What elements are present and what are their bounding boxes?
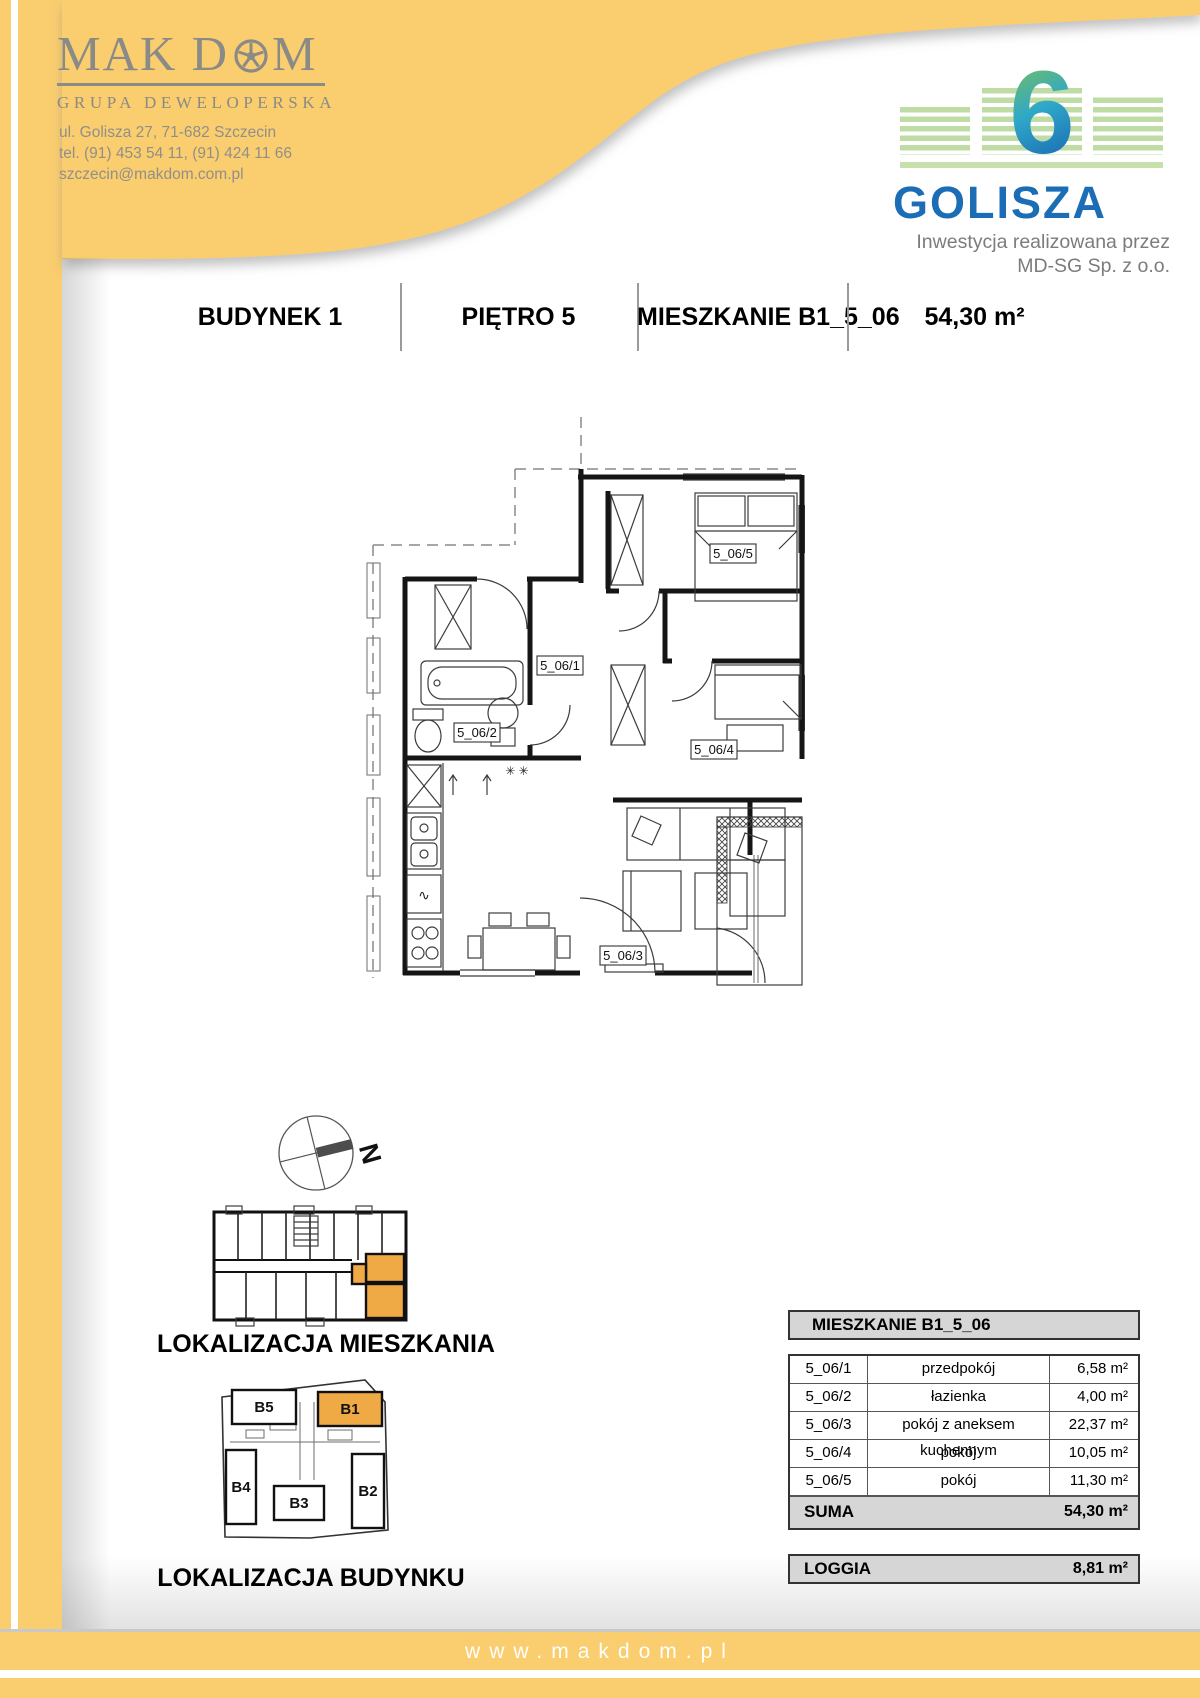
company-street: ul. Golisza 27, 71-682 Szczecin xyxy=(59,122,387,143)
bedroom5-furniture xyxy=(611,493,797,601)
header-floor: PIĘTRO 5 xyxy=(400,292,637,342)
building-stripes-left xyxy=(900,107,970,155)
table-row: 5_06/2 łazienka 4,00 m² xyxy=(790,1384,1138,1412)
room-code: 5_06/3 xyxy=(790,1412,868,1439)
building-b1-label: B1 xyxy=(340,1401,359,1418)
table-row: 5_06/1 przedpokój 6,58 m² xyxy=(790,1356,1138,1384)
room-area: 4,00 m² xyxy=(1050,1384,1138,1411)
room-name: pokój xyxy=(868,1440,1050,1467)
vent-arrows xyxy=(449,775,491,795)
room-label-3: 5_06/3 xyxy=(603,948,643,963)
room-name: łazienka xyxy=(868,1384,1050,1411)
room-area: 10,05 m² xyxy=(1050,1440,1138,1467)
stars-mark: ✳ ✳ xyxy=(505,764,528,778)
company-email: szczecin@makdom.com.pl xyxy=(59,164,387,185)
kitchen-symbol: ∿ xyxy=(418,887,430,903)
compass-rose: N xyxy=(266,1106,391,1202)
kitchen-fixtures xyxy=(407,763,443,971)
footer-white-stripe xyxy=(0,1670,1200,1678)
golisza-number-six: 6 xyxy=(1009,50,1075,172)
building-b5-label: B5 xyxy=(254,1399,273,1416)
header-building: BUDYNEK 1 xyxy=(140,292,400,342)
content-left-shadow xyxy=(62,258,110,1630)
loggia-label: LOGGIA xyxy=(790,1556,871,1582)
area-table-title: MIESZKANIE B1_5_06 xyxy=(788,1310,1140,1340)
building-b2-label: B2 xyxy=(358,1483,377,1500)
suma-value: 54,30 m² xyxy=(1064,1497,1138,1528)
loggia-row: LOGGIA 8,81 m² xyxy=(788,1554,1140,1584)
golisza-logo-block: 6 GOLISZA Inwestycja realizowana przez M… xyxy=(830,50,1170,278)
footer-url: www.makdom.pl xyxy=(0,1640,1200,1664)
company-address-block: ul. Golisza 27, 71-682 Szczecin tel. (91… xyxy=(59,122,387,185)
room-name: przedpokój xyxy=(868,1356,1050,1383)
door-arcs xyxy=(477,579,765,983)
room-label-1: 5_06/1 xyxy=(540,658,580,673)
room-code: 5_06/2 xyxy=(790,1384,868,1411)
apartment-location-plan xyxy=(206,1202,414,1330)
header-area: 54,30 m² xyxy=(847,292,1102,342)
golisza-emblem: 6 xyxy=(830,50,1170,172)
room-area: 11,30 m² xyxy=(1050,1468,1138,1495)
room-code: 5_06/5 xyxy=(790,1468,868,1495)
investor-line2: MD-SG Sp. z o.o. xyxy=(830,254,1170,278)
room-name: pokój z aneksem kuchennym xyxy=(868,1412,1050,1439)
wheel-o-icon xyxy=(231,35,271,75)
building-location-caption: LOKALIZACJA BUDYNKU xyxy=(131,1564,491,1593)
apartment-floor-plan: ∿ ✳ ✳ TV xyxy=(365,413,805,993)
room-area: 6,58 m² xyxy=(1050,1356,1138,1383)
table-row: 5_06/5 pokój 11,30 m² xyxy=(790,1468,1138,1496)
room-code: 5_06/1 xyxy=(790,1356,868,1383)
building-location-plan: B5 B1 B4 B3 B2 xyxy=(210,1372,415,1552)
suma-label: SUMA xyxy=(790,1497,854,1528)
table-row: 5_06/4 pokój 10,05 m² xyxy=(790,1440,1138,1468)
loggia-value: 8,81 m² xyxy=(1073,1556,1138,1582)
suma-row: SUMA 54,30 m² xyxy=(790,1496,1138,1528)
room-label-5: 5_06/5 xyxy=(713,546,753,561)
makdom-logo: MAK D M xyxy=(57,26,387,82)
building-b3-label: B3 xyxy=(289,1495,308,1512)
building-stripes-right xyxy=(1093,97,1163,155)
makdom-logo-text-left: MAK D xyxy=(57,26,229,82)
makdom-logo-text-right: M xyxy=(272,26,318,82)
room-area: 22,37 m² xyxy=(1050,1412,1138,1439)
offer-sheet-page: { "colors":{"yellow":"#FACD6E","orange":… xyxy=(0,0,1200,1698)
header-apartment: MIESZKANIE B1_5_06 xyxy=(637,292,847,342)
room-label-2: 5_06/2 xyxy=(457,725,497,740)
neighbour-dashed-boundary xyxy=(373,417,802,978)
apartment-location-caption: LOKALIZACJA MIESZKANIA xyxy=(146,1330,506,1359)
golisza-wordmark: GOLISZA xyxy=(830,180,1170,226)
north-label: N xyxy=(353,1140,387,1167)
area-table-body: 5_06/1 przedpokój 6,58 m² 5_06/2 łazienk… xyxy=(788,1354,1140,1530)
makdom-tagline: GRUPA DEWELOPERSKA xyxy=(57,93,387,113)
company-phone: tel. (91) 453 54 11, (91) 424 11 66 xyxy=(59,143,387,164)
makdom-logo-rule xyxy=(57,83,325,86)
building-b4-label: B4 xyxy=(231,1479,251,1496)
golisza-underline xyxy=(900,162,1163,168)
room-label-4: 5_06/4 xyxy=(694,742,734,757)
table-row: 5_06/3 pokój z aneksem kuchennym 22,37 m… xyxy=(790,1412,1138,1440)
area-table: MIESZKANIE B1_5_06 5_06/1 przedpokój 6,5… xyxy=(788,1310,1140,1584)
room-code: 5_06/4 xyxy=(790,1440,868,1467)
makdom-logo-block: MAK D M GRUPA DEWELOPERSKA ul. Golisza 2… xyxy=(57,26,387,185)
investor-note: Inwestycja realizowana przez MD-SG Sp. z… xyxy=(830,230,1170,278)
bedroom4-furniture xyxy=(611,665,801,751)
room-name: pokój xyxy=(868,1468,1050,1495)
investor-line1: Inwestycja realizowana przez xyxy=(830,230,1170,254)
